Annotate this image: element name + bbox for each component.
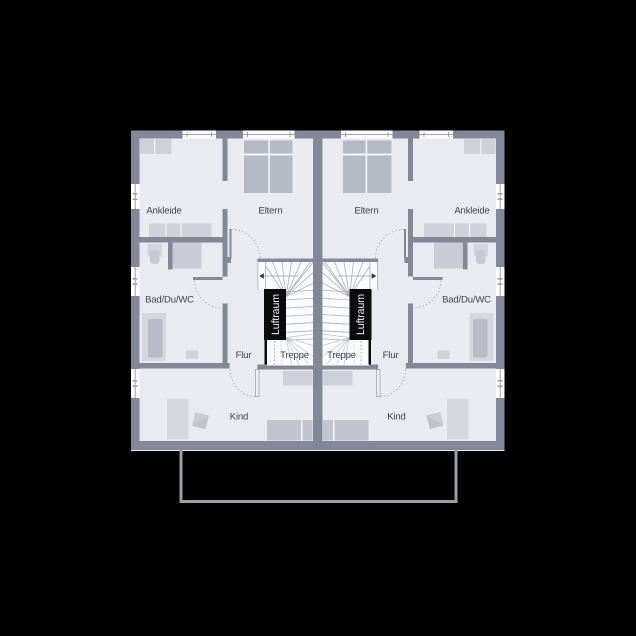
svg-text:Bad/Du/WC: Bad/Du/WC [145,295,194,306]
svg-text:Flur: Flur [383,350,399,361]
svg-text:Kind: Kind [230,412,248,423]
svg-text:Treppe: Treppe [280,350,309,361]
svg-text:Flur: Flur [236,350,252,361]
svg-text:Luftraum: Luftraum [355,294,367,335]
svg-text:Ankleide: Ankleide [454,206,489,217]
svg-text:Bad/Du/WC: Bad/Du/WC [442,295,491,306]
svg-text:Ankleide: Ankleide [146,206,181,217]
svg-text:Treppe: Treppe [327,350,356,361]
svg-text:Eltern: Eltern [259,206,283,217]
svg-text:Luftraum: Luftraum [270,294,282,335]
svg-text:Kind: Kind [387,412,405,423]
svg-text:Eltern: Eltern [355,206,379,217]
